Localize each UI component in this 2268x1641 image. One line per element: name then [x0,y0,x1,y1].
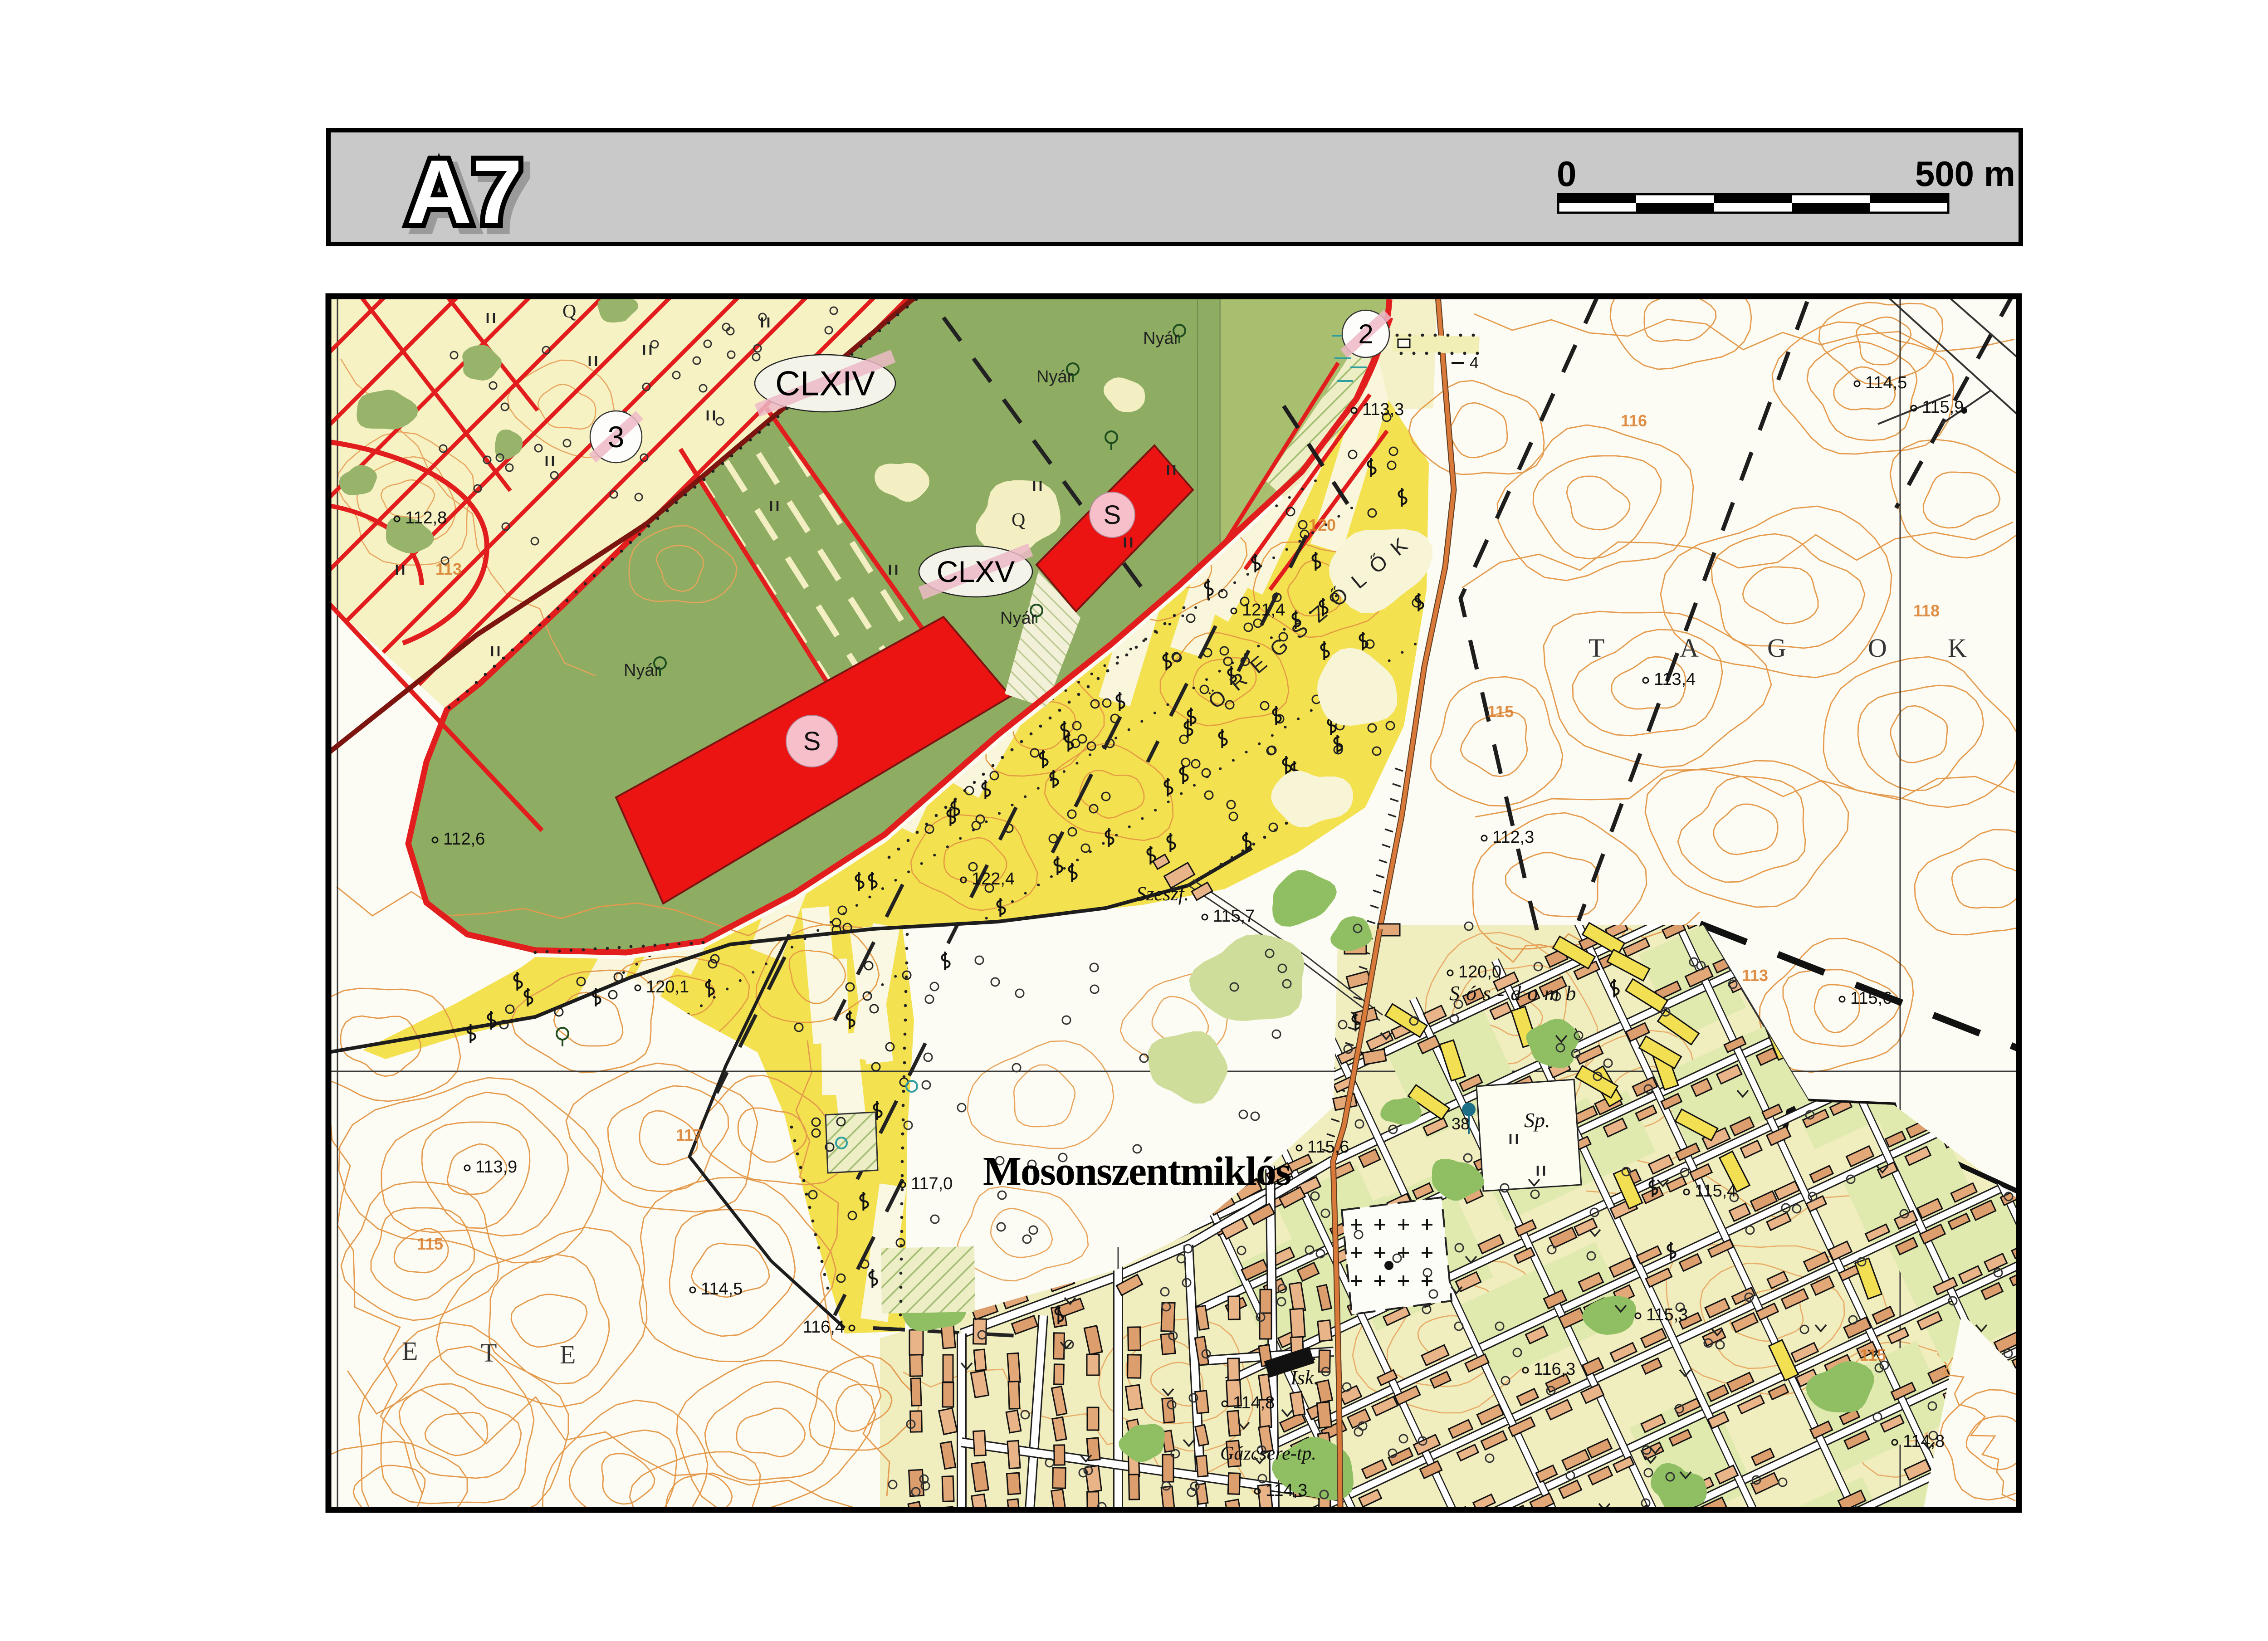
svg-text:G: G [1767,633,1786,663]
svg-text:Gázcsere-tp.: Gázcsere-tp. [1220,1443,1316,1464]
svg-text:117: 117 [676,1126,702,1144]
svg-text:114,8: 114,8 [1233,1393,1275,1412]
svg-text:O: O [1868,633,1887,663]
svg-text:Nyár: Nyár [1143,329,1180,348]
svg-text:116,3: 116,3 [1534,1360,1575,1379]
svg-text:113: 113 [1742,966,1768,985]
svg-text:121,4: 121,4 [1242,601,1285,620]
svg-text:T: T [1589,633,1604,663]
svg-text:Sós-domb: Sós-domb [1449,982,1582,1005]
svg-text:Isk.: Isk. [1290,1367,1319,1389]
svg-text:E: E [402,1336,418,1366]
svg-text:114,5: 114,5 [1865,373,1907,392]
svg-text:A: A [1680,633,1699,663]
svg-text:115: 115 [417,1235,443,1253]
svg-text:113,4: 113,4 [1654,670,1696,689]
svg-text:115: 115 [1487,702,1514,721]
svg-text:115,6: 115,6 [1850,989,1892,1008]
svg-text:K: K [1948,633,1967,663]
svg-text:115,3: 115,3 [1646,1305,1688,1324]
svg-text:Mosonszentmiklós: Mosonszentmiklós [983,1149,1290,1194]
svg-text:120,0: 120,0 [1458,962,1501,982]
svg-text:113: 113 [435,560,462,578]
svg-text:112,3: 112,3 [1492,828,1534,847]
svg-text:Nyár: Nyár [1000,609,1037,628]
svg-text:Q: Q [1012,510,1025,531]
svg-text:E: E [560,1340,576,1369]
svg-text:115,9: 115,9 [1922,398,1964,417]
svg-text:0: 0 [1557,154,1576,194]
svg-text:Nyár: Nyár [1036,367,1073,386]
svg-text:113,9: 113,9 [475,1157,517,1177]
svg-text:114,3: 114,3 [1266,1481,1307,1500]
svg-text:38: 38 [1452,1114,1470,1133]
svg-text:116: 116 [1621,411,1647,430]
svg-text:2: 2 [1358,319,1373,349]
svg-text:115: 115 [1860,1346,1886,1364]
svg-text:112,8: 112,8 [405,508,447,527]
svg-text:CLXV: CLXV [937,555,1015,588]
svg-text:Q: Q [562,301,576,322]
svg-text:500 m: 500 m [1915,154,2015,194]
svg-text:115,6: 115,6 [1307,1138,1349,1157]
svg-text:3: 3 [608,420,625,454]
svg-text:A7: A7 [406,142,523,243]
svg-text:117,0: 117,0 [911,1174,953,1193]
svg-text:120,1: 120,1 [646,977,689,996]
svg-text:113,3: 113,3 [1362,400,1404,419]
svg-text:CLXIV: CLXIV [775,365,875,403]
svg-text:Szeszf.: Szeszf. [1136,883,1189,905]
svg-text:114,5: 114,5 [701,1280,743,1299]
svg-text:Nyár: Nyár [624,661,660,680]
svg-text:4: 4 [1470,353,1479,372]
svg-text:115,4: 115,4 [1695,1182,1736,1201]
svg-text:S: S [803,727,821,756]
svg-text:120: 120 [1309,516,1336,534]
svg-text:114,8: 114,8 [1903,1432,1945,1451]
svg-text:S: S [1104,500,1121,530]
svg-text:122,4: 122,4 [972,869,1015,889]
svg-text:115,7: 115,7 [1213,907,1255,926]
svg-text:T: T [481,1338,497,1367]
svg-text:Sp.: Sp. [1524,1109,1550,1132]
svg-text:118: 118 [1913,601,1940,620]
svg-text:112,6: 112,6 [443,830,485,849]
svg-text:116,4: 116,4 [803,1318,845,1337]
